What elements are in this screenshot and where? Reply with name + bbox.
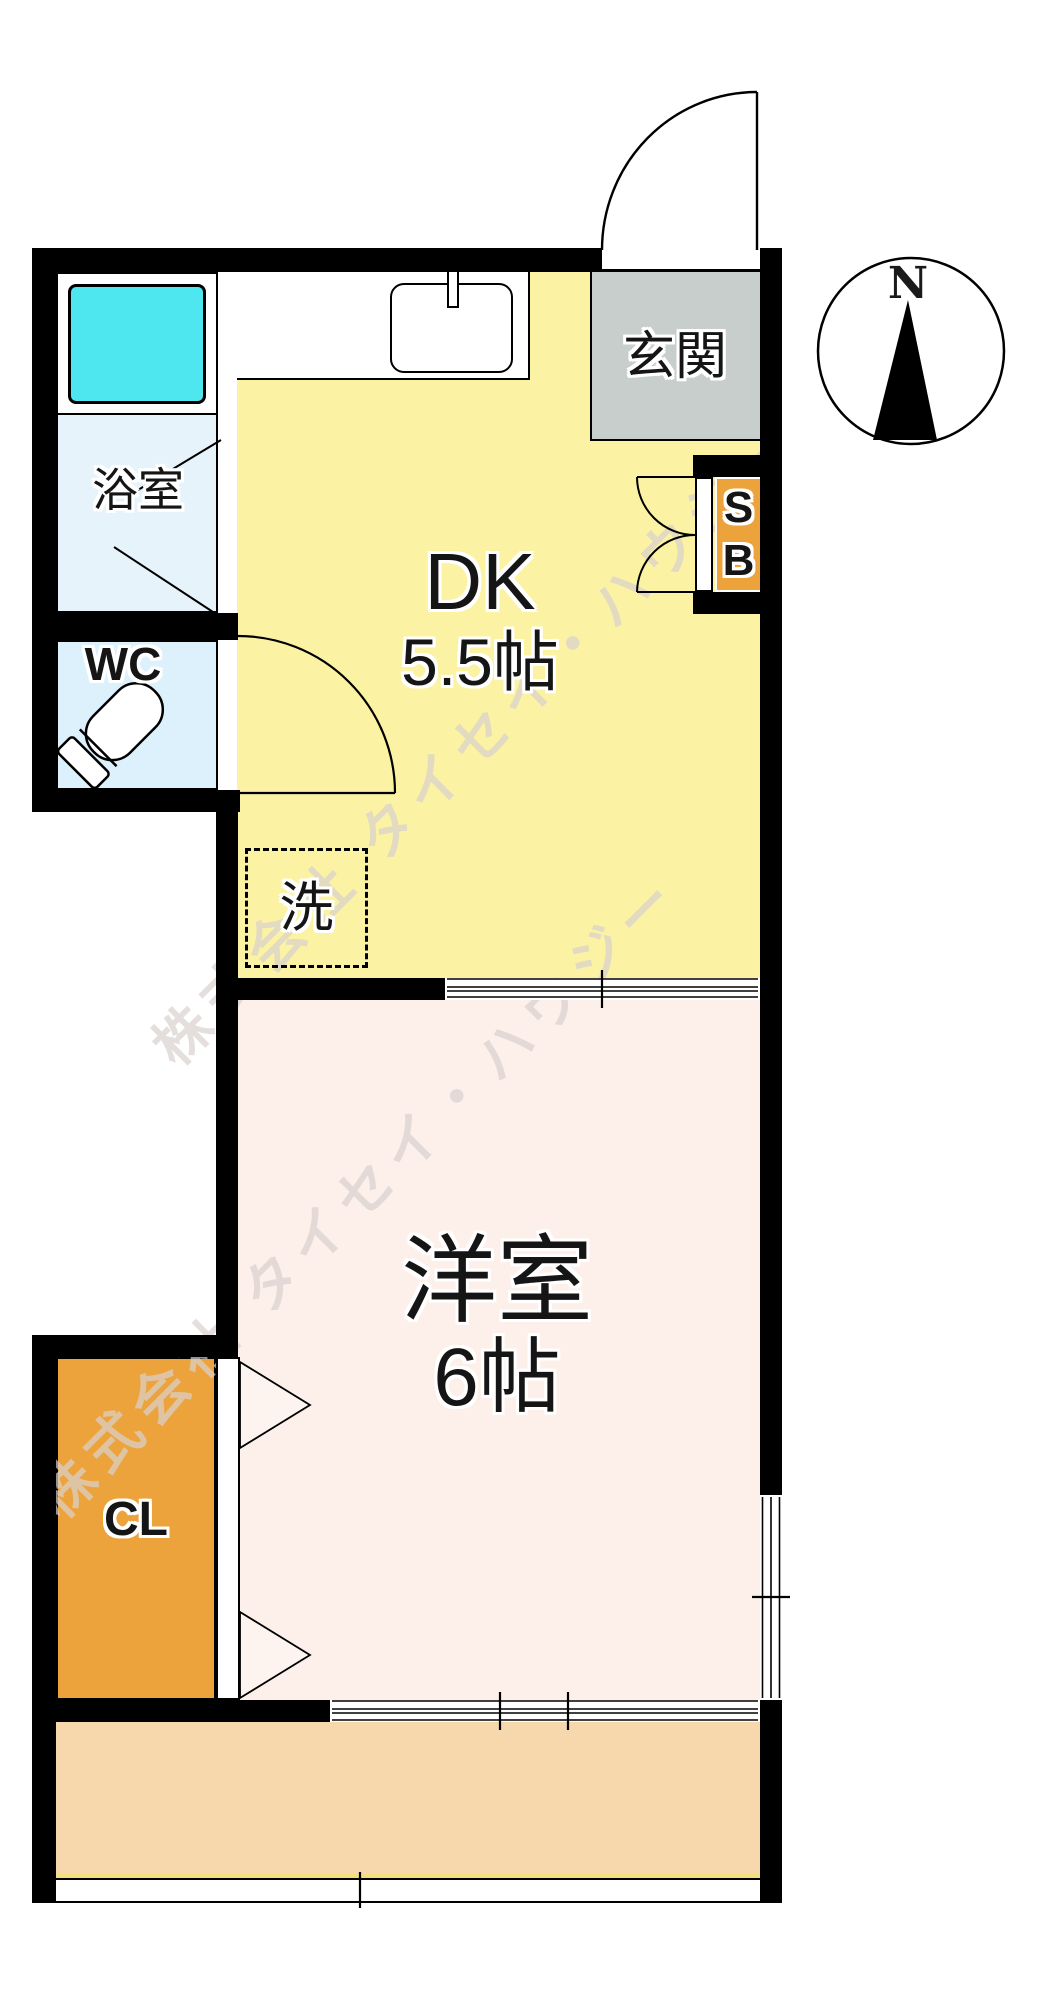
closet-door-strip bbox=[216, 1357, 240, 1700]
laundry-label: 洗 bbox=[280, 880, 334, 937]
bathroom-label: 浴室 bbox=[56, 466, 220, 514]
wall-wc-bottom bbox=[32, 790, 240, 812]
wall-bath-wc-divider bbox=[32, 613, 238, 640]
entrance-door-arc bbox=[602, 92, 757, 250]
wall-western-bottom bbox=[32, 1700, 330, 1722]
shoebox: S B bbox=[715, 477, 762, 592]
balcony-sliding-door bbox=[330, 1700, 760, 1722]
floorplan: 株式会社 タイセイ・ハウジー 株式会社 タイセイ・ハウジー S B 洗 bbox=[0, 0, 1047, 2000]
entrance-threshold bbox=[602, 246, 760, 272]
wc-label: WC bbox=[58, 640, 188, 688]
shoebox-letter-bottom: B bbox=[723, 538, 755, 584]
balcony-railing bbox=[56, 1878, 760, 1903]
closet-label: CL bbox=[56, 1495, 216, 1545]
bathtub bbox=[68, 284, 206, 404]
dk-western-sliding-door bbox=[445, 978, 760, 1000]
wall-left-upper bbox=[32, 250, 56, 812]
wall-shoebox-bottom bbox=[693, 592, 766, 614]
dk-room-size: 5.5帖 bbox=[320, 628, 640, 697]
western-room-size: 6帖 bbox=[337, 1335, 657, 1421]
compass: N bbox=[816, 256, 1006, 446]
wall-right-upper bbox=[760, 248, 782, 1495]
wall-dk-left bbox=[216, 790, 238, 1000]
wall-closet-top bbox=[32, 1335, 216, 1357]
shoebox-letter-top: S bbox=[724, 485, 753, 531]
dk-label: DK 5.5帖 bbox=[320, 540, 640, 697]
western-room-label: 洋室 6帖 bbox=[337, 1232, 657, 1421]
wall-dk-western-divider bbox=[216, 978, 445, 1000]
western-room-name: 洋室 bbox=[337, 1232, 657, 1333]
dk-room-name: DK bbox=[320, 540, 640, 624]
kitchen-faucet bbox=[447, 270, 459, 308]
room-balcony bbox=[56, 1722, 760, 1878]
wall-western-left bbox=[216, 1000, 238, 1357]
wall-right-lower bbox=[760, 1700, 782, 1903]
laundry-space: 洗 bbox=[245, 848, 368, 968]
wall-shoebox-top bbox=[693, 455, 766, 477]
shoebox-door bbox=[695, 477, 713, 592]
compass-north-label: N bbox=[888, 258, 928, 309]
wall-top bbox=[32, 248, 602, 272]
genkan-label: 玄関 bbox=[590, 330, 760, 385]
right-wall-window bbox=[760, 1495, 782, 1700]
wall-left-lower bbox=[32, 1335, 56, 1903]
